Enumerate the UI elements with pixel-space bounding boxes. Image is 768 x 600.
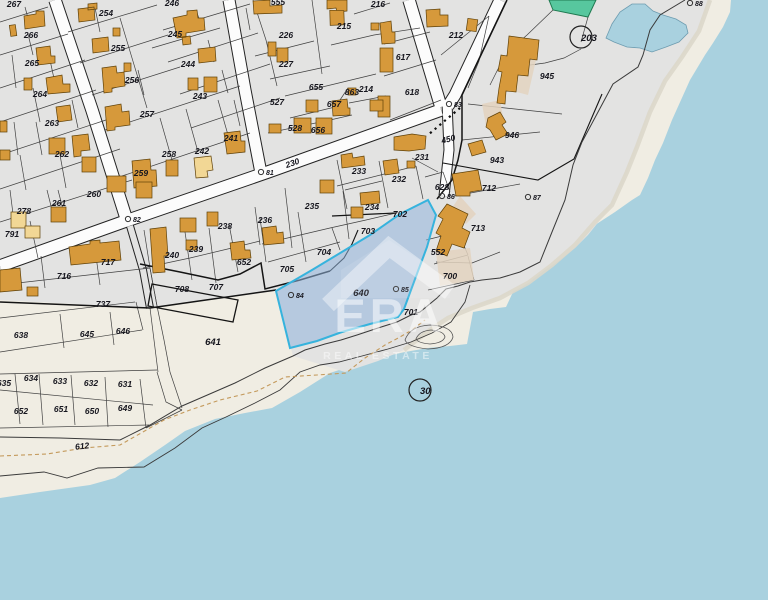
svg-text:945: 945	[540, 71, 554, 81]
svg-text:238: 238	[217, 221, 232, 231]
svg-text:227: 227	[278, 59, 294, 69]
svg-text:88: 88	[695, 1, 703, 8]
svg-text:264: 264	[32, 89, 47, 99]
svg-text:203: 203	[580, 33, 598, 44]
svg-text:707: 707	[209, 282, 224, 292]
svg-text:791: 791	[5, 229, 19, 239]
svg-text:232: 232	[391, 174, 406, 184]
svg-text:655: 655	[309, 82, 323, 92]
svg-text:86: 86	[447, 194, 455, 201]
svg-text:254: 254	[98, 8, 113, 18]
svg-text:635: 635	[0, 378, 11, 388]
svg-text:212: 212	[448, 30, 463, 40]
svg-text:708: 708	[175, 284, 189, 294]
svg-text:704: 704	[317, 247, 331, 257]
svg-text:83: 83	[454, 102, 462, 109]
svg-text:645: 645	[80, 329, 94, 339]
svg-text:527: 527	[270, 97, 285, 107]
svg-text:214: 214	[358, 84, 373, 94]
svg-text:243: 243	[192, 91, 207, 101]
svg-text:244: 244	[180, 59, 195, 69]
svg-text:259: 259	[133, 168, 148, 178]
svg-text:652: 652	[237, 257, 251, 267]
svg-text:236: 236	[257, 215, 272, 225]
svg-text:651: 651	[54, 404, 68, 414]
svg-text:261: 261	[51, 198, 66, 208]
svg-text:262: 262	[54, 149, 69, 159]
svg-text:235: 235	[304, 201, 319, 211]
svg-text:656: 656	[311, 125, 325, 135]
svg-text:240: 240	[164, 250, 179, 260]
svg-text:233: 233	[351, 166, 366, 176]
svg-text:278: 278	[16, 206, 31, 216]
svg-text:649: 649	[118, 403, 132, 413]
svg-text:717: 717	[101, 257, 116, 267]
svg-text:267: 267	[6, 0, 22, 9]
svg-text:242: 242	[194, 146, 209, 156]
svg-text:239: 239	[188, 244, 203, 254]
svg-text:712: 712	[482, 183, 496, 193]
svg-text:863: 863	[345, 87, 359, 97]
svg-text:652: 652	[14, 406, 28, 416]
svg-text:618: 618	[405, 87, 419, 97]
svg-text:528: 528	[288, 123, 302, 133]
svg-text:231: 231	[414, 152, 429, 162]
svg-text:ERA: ERA	[334, 289, 445, 342]
svg-text:258: 258	[161, 149, 176, 159]
svg-text:241: 241	[223, 133, 238, 143]
svg-text:716: 716	[57, 271, 71, 281]
svg-text:705: 705	[280, 264, 294, 274]
svg-text:87: 87	[533, 195, 542, 202]
svg-text:946: 946	[505, 130, 519, 140]
svg-text:84: 84	[296, 293, 304, 300]
svg-text:713: 713	[471, 223, 485, 233]
svg-text:552: 552	[431, 247, 445, 257]
svg-text:82: 82	[133, 217, 141, 224]
svg-text:632: 632	[84, 378, 98, 388]
svg-text:226: 226	[278, 30, 293, 40]
svg-text:216: 216	[370, 0, 385, 9]
svg-text:638: 638	[14, 330, 28, 340]
svg-text:81: 81	[266, 170, 274, 177]
svg-text:215: 215	[336, 21, 351, 31]
svg-text:703: 703	[361, 226, 375, 236]
svg-text:265: 265	[24, 58, 39, 68]
svg-text:641: 641	[205, 337, 221, 348]
svg-text:737: 737	[96, 299, 111, 309]
svg-text:263: 263	[44, 118, 59, 128]
svg-text:631: 631	[118, 379, 132, 389]
svg-text:245: 245	[167, 29, 182, 39]
svg-text:234: 234	[364, 202, 379, 212]
svg-text:555: 555	[271, 0, 285, 7]
svg-text:628: 628	[435, 182, 449, 192]
svg-text:256: 256	[124, 75, 139, 85]
svg-text:30: 30	[420, 386, 431, 397]
svg-text:612: 612	[75, 440, 90, 451]
svg-text:257: 257	[139, 109, 155, 119]
svg-text:702: 702	[393, 209, 407, 219]
svg-text:657: 657	[327, 99, 342, 109]
svg-text:246: 246	[164, 0, 179, 8]
svg-text:634: 634	[24, 373, 38, 383]
svg-text:255: 255	[110, 43, 125, 53]
svg-text:633: 633	[53, 376, 67, 386]
svg-text:260: 260	[86, 189, 101, 199]
svg-text:650: 650	[85, 406, 99, 416]
svg-text:646: 646	[116, 326, 130, 336]
svg-text:REAL ESTATE: REAL ESTATE	[323, 350, 433, 362]
svg-text:266: 266	[23, 30, 38, 40]
svg-text:943: 943	[490, 155, 504, 165]
svg-text:617: 617	[396, 52, 411, 62]
